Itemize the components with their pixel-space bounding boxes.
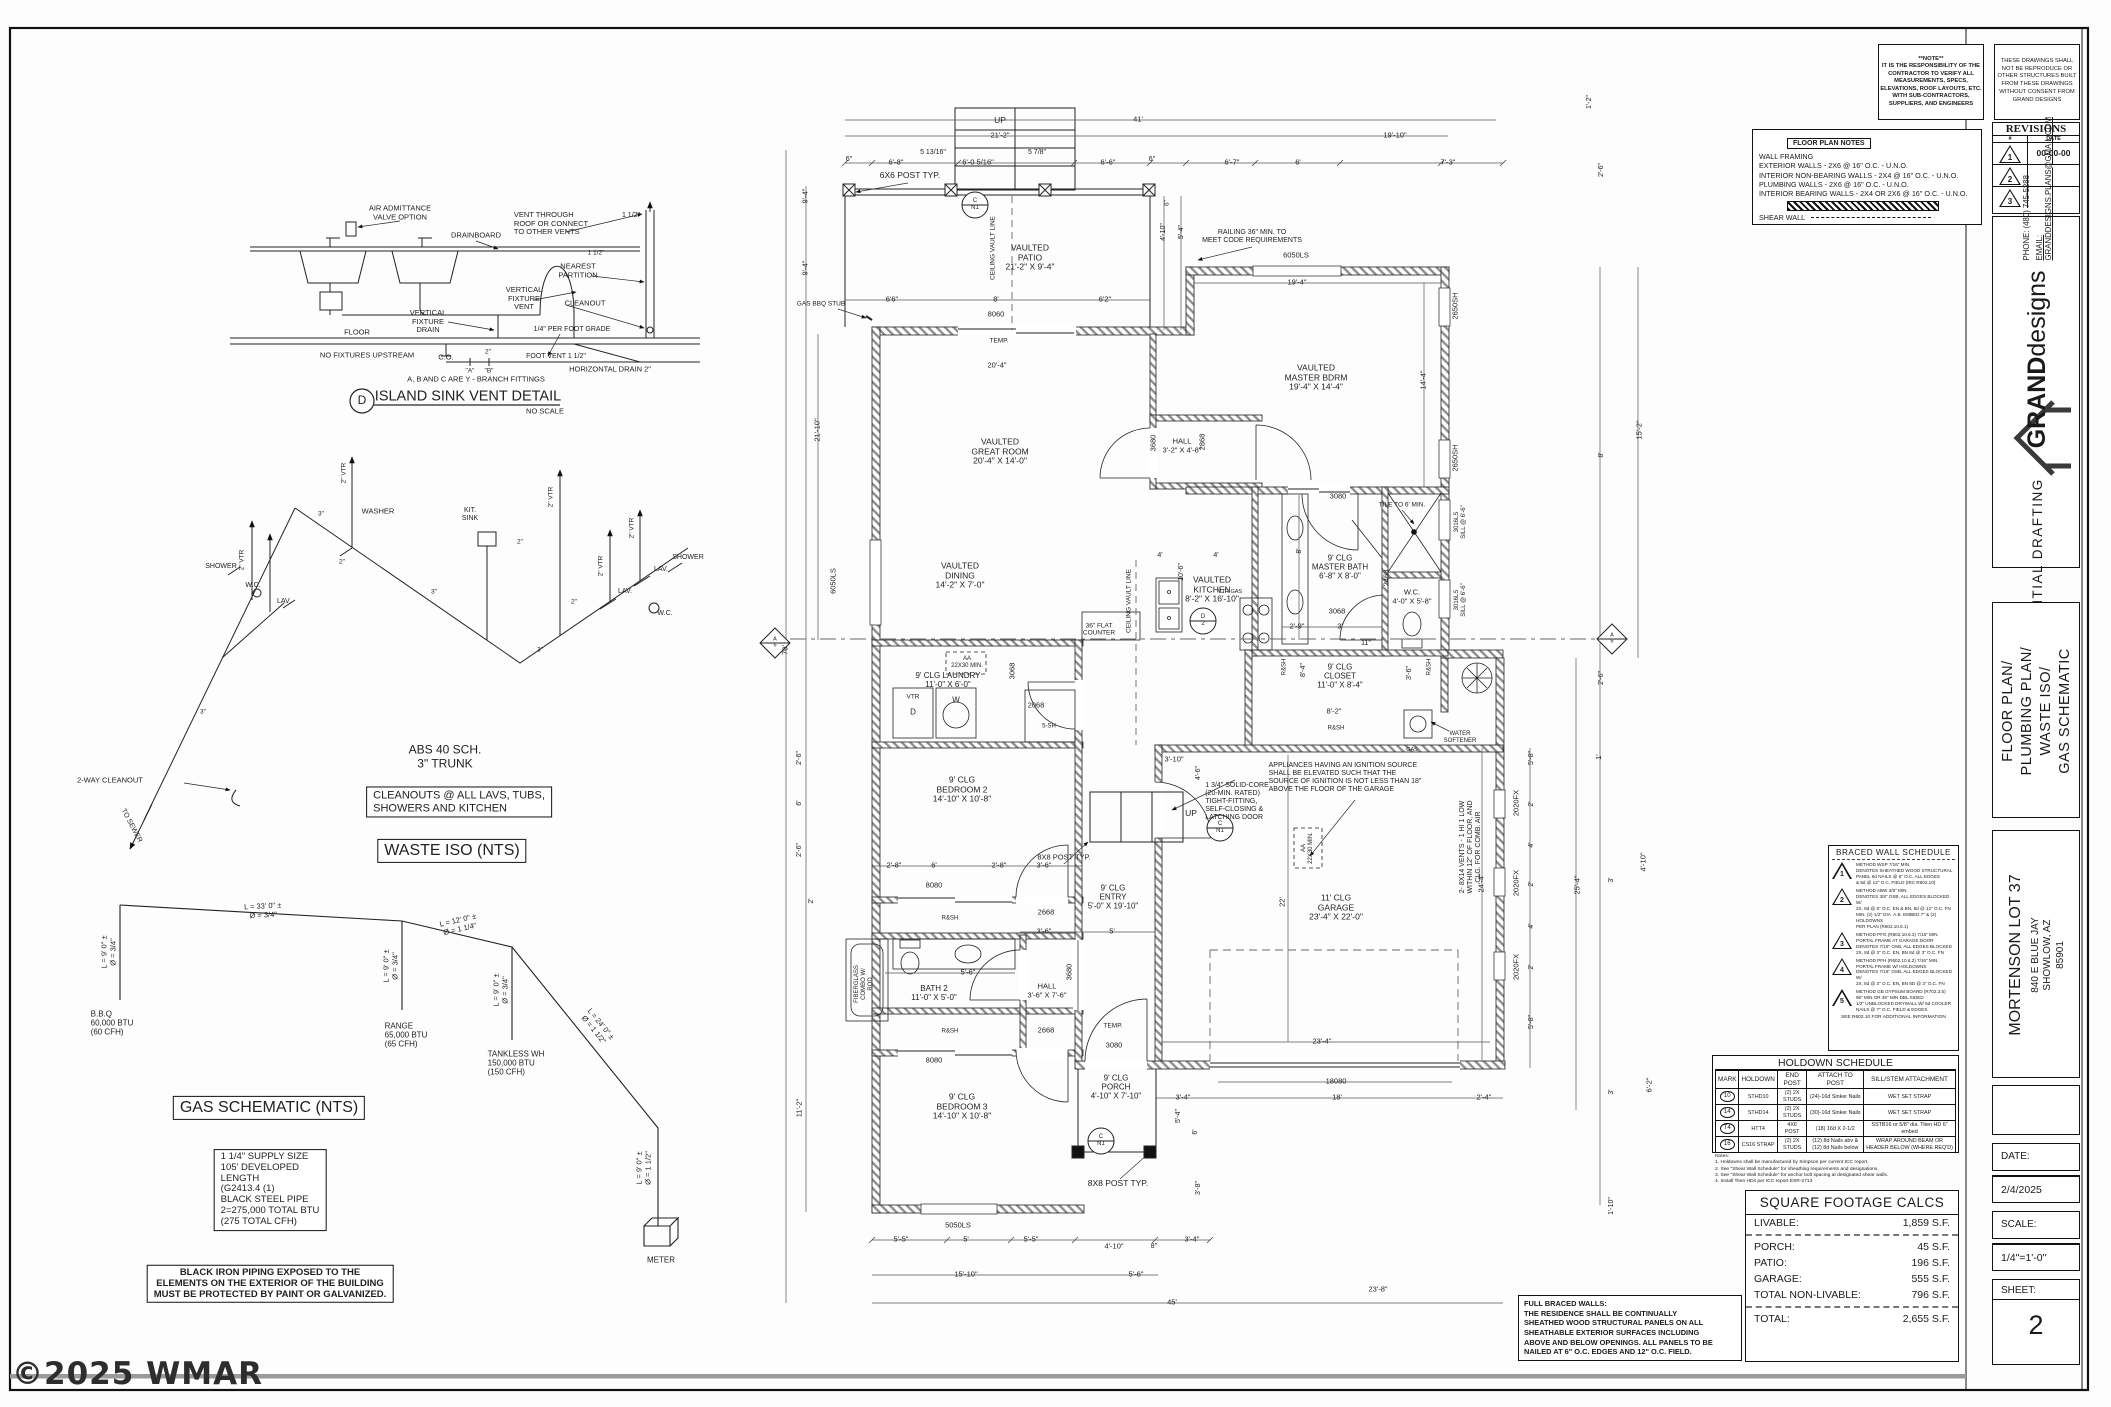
room-label-closet: 9' CLG CLOSET 11'-0" X 8'-4" [1317, 662, 1363, 689]
annotation-label: 4' [1528, 923, 1536, 928]
sqft-row-patio: PATIO:196 S.F. [1746, 1255, 1958, 1271]
annotation-label: 6' [1192, 1129, 1200, 1134]
titleblock-empty-box [1992, 1085, 2080, 1135]
room-label-bath-2: BATH 2 11'-0" X 5'-0" [911, 984, 957, 1002]
annotation-label: 2468 [1383, 570, 1392, 587]
annotation-label: 19'-10" [1383, 132, 1406, 141]
braced-triangle-icon: 2 [1832, 888, 1852, 905]
annotation-label: 4'-10" [1104, 1243, 1123, 1252]
annotation-label: 6'-6" [1101, 159, 1116, 168]
annotation-label: L = 33' 0" ± Ø = 3/4" [244, 901, 282, 920]
braced-triangle-icon: 5 [1832, 989, 1852, 1006]
sqft-row-livable: LIVABLE:1,859 S.F. [1746, 1215, 1958, 1231]
ignition-note: APPLIANCES HAVING AN IGNITION SOURCE SHA… [1269, 762, 1422, 794]
scale-value: 1/4"=1'-0" [2001, 1252, 2046, 1264]
annotation-label: A 6 [773, 637, 777, 650]
annotation-label: 9'-4" [802, 261, 811, 276]
annotation-label: 4'-10" [1640, 852, 1649, 871]
room-label-laundry: 9' CLG LAUNDRY 11'-0" X 6'-0" [916, 671, 981, 689]
annotation-label: VERTICAL FIXTURE DRAIN [410, 309, 447, 335]
room-label-porch: 9' CLG PORCH 4'-10" X 7'-10" [1091, 1073, 1142, 1100]
floor-plan-notes-title: FLOOR PLAN NOTES [1787, 138, 1871, 149]
room-label-bedroom-3: 9' CLG BEDROOM 3 14'-10" X 10'-8" [933, 1092, 991, 1121]
braced-wall-row: 3METHOD PFG (R602.10.6.3) 7/16" MIN PORT… [1832, 932, 1955, 956]
annotation-label: 36" FLAT COUNTER [1083, 623, 1115, 638]
annotation-label: 4' [1213, 552, 1218, 560]
annotation-label: 5'-8" [1528, 1015, 1536, 1029]
annotation-label: 2' [1528, 881, 1536, 886]
annotation-label: 2'-6" [796, 751, 804, 765]
room-label-dining: VAULTED DINING 14'-2" X 7'-0" [936, 561, 985, 590]
annotation-label: 3" [318, 510, 324, 517]
annotation-label: 3016LS SILL @ 6'-6" [1454, 583, 1468, 617]
annotation-label: 4' [1157, 552, 1162, 560]
holdown-table: MARKHOLDOWNEND POSTATTACH TO POSTSILL/ST… [1715, 1070, 1956, 1153]
annotation-label: 3'-4" [1176, 1094, 1191, 1103]
cleanouts-note: CLEANOUTS @ ALL LAVS, TUBS, SHOWERS AND … [366, 786, 552, 817]
revision-triangle-icon: 2 [1999, 167, 2021, 185]
annotation-label: 2" VTR [628, 518, 635, 539]
annotation-label: 4' [1528, 842, 1536, 847]
annotation-label: R&SH [1427, 659, 1434, 676]
annotation-label: 18' [1332, 1094, 1342, 1103]
island-sink-vent-detail-title: ISLAND SINK VENT DETAIL [375, 389, 561, 406]
annotation-label: 2020FX [1513, 954, 1522, 980]
braced-wall-row: 1METHOD WSP 7/16" MIN. DENOTES SHEATHED … [1832, 862, 1955, 886]
annotation-label: 5 7/8" [1028, 149, 1046, 157]
gas-meter-label: METER [647, 1255, 675, 1264]
annotation-label: 11'-2" [796, 1099, 805, 1118]
braced-triangle-icon: 3 [1832, 932, 1852, 949]
annotation-label: 6' [1295, 159, 1301, 168]
annotation-label: AA 22X30 MIN. [951, 656, 983, 670]
room-label-great-room: VAULTED GREAT ROOM 20'-4" X 14'-0" [971, 437, 1028, 466]
annotation-label: L = 24' 0" ± Ø = 1 1/2" [579, 1007, 616, 1047]
annotation-label: CEILING VAULT LINE [989, 216, 996, 280]
annotation-label: NO SCALE [526, 408, 564, 417]
annotation-label: UP [1185, 809, 1197, 819]
annotation-label: C N1 [1216, 821, 1224, 835]
annotation-label: 2650SH [1452, 292, 1461, 319]
floor-plan-notes-box: FLOOR PLAN NOTES WALL FRAMING EXTERIOR W… [1752, 129, 1982, 225]
annotation-label: 3' [1608, 877, 1616, 882]
annotation-label: D 2 [1201, 614, 1205, 628]
annotation-label: VTR [907, 693, 920, 700]
project-box: MORTENSON LOT 37 840 E BLUE JAY SHOWLOW,… [1992, 830, 2080, 1078]
braced-wall-row: 5METHOD GB GYPSUM BOARD (R702.3.5) 96" M… [1832, 989, 1955, 1013]
sheet-number: 2 [1993, 1300, 2079, 1341]
annotation-label: 3" [200, 708, 206, 715]
annotation-label: SHOWER [672, 554, 704, 562]
annotation-label: 3680 [1150, 435, 1159, 452]
annotation-label: 3' [1608, 1089, 1616, 1094]
annotation-label: 2' [1528, 801, 1536, 806]
annotation-label: 2" [485, 348, 491, 355]
annotation-label: A 6 [1610, 633, 1614, 646]
annotation-label: FOOT VENT 1 1/2" [526, 353, 586, 361]
annotation-label: 3' [1337, 623, 1343, 632]
post-note-6x6: 6X6 POST TYP. [880, 171, 940, 181]
waste-iso-title: WASTE ISO (NTS) [377, 839, 526, 863]
annotation-label: CLEANOUT [565, 300, 606, 309]
annotation-label: 2'-6" [796, 843, 804, 857]
annotation-label: 2" [339, 558, 345, 565]
annotation-label: 5'-4" [1178, 225, 1186, 239]
annotation-label: LAV. [654, 566, 668, 574]
annotation-label: 6'-2" [1646, 1078, 1655, 1093]
annotation-label: 1 1/2" [622, 212, 640, 220]
annotation-label: FIBERGLASS COMBO W/ ROD [854, 965, 874, 1003]
gas-range: RANGE 65,000 BTU (65 CFH) [385, 1021, 428, 1048]
annotation-label: 4'-6" [1195, 766, 1203, 780]
annotation-label: 2' [808, 898, 816, 903]
annotation-label: 6050LS [1283, 252, 1309, 261]
sheet-title-box: FLOOR PLAN/ PLUMBING PLAN/ WASTE ISO/ GA… [1992, 602, 2080, 818]
annotation-label: 24'-4" [1478, 873, 1487, 892]
annotation-label: 6' [931, 862, 937, 871]
annotation-label: 41' [1133, 116, 1143, 125]
annotation-label: 5'-4" [1175, 1109, 1183, 1123]
annotation-label: L = 9' 0" ± Ø = 3/4" [382, 949, 399, 982]
gas-tankless-wh: TANKLESS WH 150,000 BTU (150 CFH) [488, 1049, 545, 1076]
annotation-label: 1/4" PER FOOT GRADE [534, 326, 611, 334]
project-address: 840 E BLUE JAY SHOWLOW, AZ 85901 [2030, 917, 2068, 992]
annotation-label: 2020FX [1513, 790, 1522, 816]
annotation-label: 3068 [1329, 608, 1346, 617]
annotation-label: 21'-2" [990, 132, 1009, 141]
contractor-note-text: **NOTE** IT IS THE RESPONSIBILITY OF THE… [1880, 56, 1981, 107]
room-label-hall-master: HALL 3'-2" X 4'-8" [1162, 437, 1201, 454]
date-label-box: DATE: [1992, 1143, 2080, 1171]
annotation-label: CEILING VAULT LINE [1125, 569, 1132, 633]
annotation-label: GAS [1406, 747, 1418, 753]
annotation-label: 8" [1151, 1243, 1157, 1251]
annotation-label: 7'-3" [1441, 159, 1456, 168]
annotation-label: SHOWER [205, 563, 237, 571]
annotation-label: 2'-8" [992, 862, 1007, 871]
annotation-label: A, B AND C ARE Y - BRANCH FITTINGS [407, 376, 545, 385]
annotation-label: 6'2" [1099, 296, 1111, 305]
annotation-label: TILE TO 6' MIN. [1379, 501, 1426, 508]
logo-designs: designs [2023, 270, 2051, 356]
annotation-label: 3080 [1106, 1042, 1123, 1051]
annotation-label: 15'-2" [1636, 420, 1645, 439]
annotation-label: 2'-8" [887, 862, 902, 871]
braced-triangle-icon: 4 [1832, 958, 1852, 975]
annotation-label: 19'-4" [1287, 279, 1306, 288]
annotation-label: 5'-5" [894, 1236, 909, 1245]
drawing-sheet: AIR ADMITTANCE VALVE OPTIONDRAINBOARDVEN… [0, 0, 2111, 1407]
post-note-8x8: 8X8 POST TYP. [1088, 1179, 1148, 1189]
annotation-label: 14'-4" [1420, 370, 1429, 389]
annotation-label: TO SEWER [119, 808, 144, 845]
braced-wall-row: 2METHOD ABW 3/8" MIN. DENOTES 3/8" OSB, … [1832, 888, 1955, 930]
annotation-label: 2668 [1038, 1027, 1055, 1036]
annotation-label: C N1 [1097, 1134, 1105, 1148]
brand-box: RESIDENTIAL DRAFTING GRANDdesigns PHONE:… [1992, 216, 2080, 568]
annotation-label: 8' [993, 296, 999, 305]
scale-label-box: SCALE: [1992, 1211, 2080, 1239]
annotation-label: 5'-6" [961, 969, 976, 978]
holdown-title: HOLDOWN SCHEDULE [1715, 1057, 1956, 1070]
annotation-label: R&SH [942, 916, 959, 923]
annotation-label: 6050LS [830, 568, 839, 594]
scale-label: SCALE: [2001, 1219, 2037, 1230]
annotation-label: 2668 [1038, 909, 1055, 918]
black-iron-note: BLACK IRON PIPING EXPOSED TO THE ELEMENT… [147, 1265, 394, 1303]
annotation-label: 8'-2" [1327, 708, 1342, 717]
sheet-number-box: SHEET: 2 [1992, 1279, 2080, 1365]
annotation-label: NEAREST PARTITION [558, 262, 597, 279]
annotation-label: L = 9' 0" ± Ø = 3/4" [492, 973, 509, 1006]
annotation-label: L = 12' 0" ± Ø = 1 1/4" [439, 912, 479, 937]
floor-plan-notes-lines: WALL FRAMING EXTERIOR WALLS - 2X6 @ 16" … [1759, 152, 1975, 199]
annotation-label: 70' [782, 645, 791, 655]
sqft-row-nonlivable: TOTAL NON-LIVABLE:796 S.F. [1746, 1287, 1958, 1303]
holdown-row: 16CS16 STRAP(2) 2X STUDS(12) 8d Nails ab… [1716, 1137, 1956, 1153]
logo-grand: GRAND [2023, 357, 2051, 449]
annotation-label: 8060 [988, 311, 1005, 320]
gas-supply-note: 1 1/4" SUPPLY SIZE 105' DEVELOPED LENGTH… [214, 1149, 327, 1231]
annotation-label: 2" VTR [238, 550, 245, 571]
annotation-label: 5050LS [945, 1222, 971, 1231]
project-name: MORTENSON LOT 37 [2007, 874, 2025, 1035]
annotation-label: 3'-8" [1195, 1181, 1203, 1195]
annotation-label: 2-WAY CLEANOUT [77, 777, 143, 786]
annotation-label: 8'-4" [1300, 663, 1308, 677]
annotation-label: 2650SH [1452, 444, 1461, 471]
revision-triangle-icon: 3 [1999, 189, 2021, 207]
gas-schematic-title: GAS SCHEMATIC (NTS) [173, 1096, 365, 1120]
annotation-label: 3" [431, 588, 437, 595]
annotation-label: 3'-6" [1406, 666, 1414, 680]
annotation-label: 1' [1596, 754, 1604, 759]
annotation-label: R&SH [1282, 659, 1289, 676]
annotation-label: 5' [963, 1236, 969, 1245]
copyright-note-text: THESE DRAWINGS SHALL NOT BE REPRODUCE OR… [1997, 58, 2076, 103]
annotation-label: W [952, 695, 960, 704]
annotation-label: R&SH [942, 1029, 959, 1036]
annotation-label: L = 9' 0" ± Ø = 1 1/2" [635, 1151, 652, 1185]
annotation-label: VERTICAL FIXTURE VENT [506, 286, 543, 312]
annotation-label: WASHER [362, 508, 395, 517]
sqft-row-total: TOTAL:2,655 S.F. [1746, 1311, 1958, 1327]
station-watermark: ©2025 WMAR [12, 1356, 263, 1392]
room-label-master-bath: 9' CLG MASTER BATH 6'-8" X 8'-0" [1312, 553, 1368, 580]
annotation-label: 3" [537, 646, 543, 653]
annotation-label: W.C. [657, 610, 672, 618]
room-label-master-bedroom: VAULTED MASTER BDRM 19'-4" X 14'-4" [1285, 363, 1348, 392]
annotation-label: 6' [796, 800, 804, 805]
annotation-label: 5'-6" [1129, 1271, 1144, 1280]
annotation-label: 18080 [1326, 1078, 1347, 1087]
annotation-label: 6'-8" [889, 159, 904, 168]
annotation-label: 2" VTR [547, 487, 554, 508]
sheet-label: SHEET: [1993, 1280, 2079, 1300]
annotation-label: 8' [1296, 548, 1304, 553]
full-braced-walls-note: FULL BRACED WALLS: THE RESIDENCE SHALL B… [1518, 1295, 1742, 1361]
annotation-label: 4'-10" [1160, 223, 1168, 241]
annotation-label: 11" [1361, 640, 1371, 648]
sqft-row-porch: PORCH:45 S.F. [1746, 1239, 1958, 1255]
braced-wall-title: BRACED WALL SCHEDULE [1832, 848, 1955, 857]
annotation-label: 23'-8" [1368, 1286, 1387, 1295]
annotation-label: 1'-2" [1586, 95, 1594, 109]
annotation-label: AA 22X30 MIN. [1301, 832, 1315, 864]
holdown-row: 14STHD14(2) 2X STUDS(30)-16d Sinker Nail… [1716, 1105, 1956, 1121]
waste-iso-trunk-note: ABS 40 SCH. 3" TRUNK [409, 743, 482, 770]
annotation-label: "A" [466, 367, 475, 374]
annotation-label: L = 9' 0" ± Ø = 3/4" [100, 935, 117, 968]
annotation-label: 2'-6" [1598, 163, 1606, 177]
annotation-label: C N1 [971, 198, 979, 212]
annotation-label: 8' [1598, 452, 1606, 457]
bearing-wall-symbol [1787, 201, 1939, 211]
room-label-wc: W.C. 4'-0" X 5'-8" [1392, 588, 1431, 605]
annotation-label: 2868 [1199, 434, 1208, 451]
annotation-label: WATER SOFTENER [1444, 731, 1477, 745]
holdown-row: T4HTT44X6 POST(18) 16d X 2-1/2SSTB16 or … [1716, 1121, 1956, 1137]
annotation-label: 6" [1163, 200, 1170, 206]
date-label: DATE: [2001, 1151, 2030, 1162]
annotation-label: FLOOR [344, 329, 370, 338]
sqft-row-garage: GARAGE:555 S.F. [1746, 1271, 1958, 1287]
gas-bbq: B.B.Q 60,000 BTU (60 CFH) [91, 1009, 134, 1036]
annotation-label: 8080 [926, 1057, 943, 1066]
annotation-label: AIR ADMITTANCE VALVE OPTION [369, 204, 431, 221]
annotation-label: 21'-10" [814, 418, 823, 441]
annotation-label: 3'-6" [1037, 862, 1052, 871]
annotation-label: 2' [1528, 964, 1536, 969]
annotation-label: 25'-4" [1574, 875, 1583, 894]
room-label-entry: 9' CLG ENTRY 5'-0" X 19'-10" [1088, 883, 1139, 910]
annotation-label: 20'-4" [987, 362, 1006, 371]
annotation-label: 5'-8" [1528, 751, 1536, 765]
holdown-schedule: HOLDOWN SCHEDULE MARKHOLDOWNEND POSTATTA… [1712, 1055, 1959, 1153]
annotation-label: 1'-10" [1608, 1197, 1616, 1215]
annotation-label: 3'-4" [1185, 1236, 1200, 1245]
annotation-label: R&SH [1328, 726, 1345, 733]
annotation-label: 2" [571, 598, 577, 605]
annotation-label: 6" [846, 156, 852, 164]
braced-wall-row: 4METHOD PFH (R602.10.6.2) 7/16" MIN PORT… [1832, 958, 1955, 988]
revision-triangle-icon: 1 [1999, 145, 2021, 163]
garage-door-note: 1 3/4" SOLID-CORE (20-MIN. RATED) TIGHT-… [1205, 782, 1269, 822]
annotation-label: 3'-10" [1164, 756, 1183, 765]
contractor-note-box: **NOTE** IT IS THE RESPONSIBILITY OF THE… [1878, 44, 1984, 120]
square-footage-box: SQUARE FOOTAGE CALCS LIVABLE:1,859 S.F. … [1745, 1190, 1959, 1362]
shear-wall-line-symbol [1811, 217, 1931, 218]
annotation-label: 6'-0 5/16" [962, 159, 994, 168]
annotation-label: 8080 [926, 882, 943, 891]
annotation-label: 1 1/2" [588, 249, 605, 256]
braced-wall-schedule: BRACED WALL SCHEDULE 1METHOD WSP 7/16" M… [1828, 845, 1959, 1051]
sheet-title-text: FLOOR PLAN/ PLUMBING PLAN/ WASTE ISO/ GA… [1999, 647, 2074, 776]
braced-wall-footer: SEE R602.10 FOR ADDITIONAL INFORMATION [1832, 1015, 1955, 1020]
room-label-patio: VAULTED PATIO 21'-2" X 9'-4" [1006, 243, 1055, 272]
annotation-label: NO FIXTURES UPSTREAM [320, 352, 414, 361]
annotation-label: 2" [517, 538, 523, 545]
annotation-label: 3680 [1066, 964, 1075, 981]
room-label-hall-bedrooms: HALL 3'-6" X 7'-6" [1027, 982, 1066, 999]
annotation-label: 5' [1109, 928, 1115, 937]
square-footage-title: SQUARE FOOTAGE CALCS [1746, 1191, 1958, 1215]
annotation-label: HORIZONTAL DRAIN 2" [569, 366, 651, 375]
annotation-label: DRAINBOARD [451, 232, 501, 241]
scale-value-box: 1/4"=1'-0" [1992, 1243, 2080, 1271]
annotation-label: W.C. [245, 582, 260, 590]
annotation-label: 2020FX [1513, 870, 1522, 896]
room-label-bedroom-2: 9' CLG BEDROOM 2 14'-10" X 10'-8" [933, 775, 991, 804]
holdown-row: 10STHD10(2) 2X STUDS(24)-16d Sinker Nail… [1716, 1089, 1956, 1105]
date-value-box: 2/4/2025 [1992, 1175, 2080, 1203]
annotation-label: 3016LS SILL @ 6'-6" [1454, 505, 1468, 539]
annotation-label: 6'-7" [1225, 159, 1240, 168]
annotation-label: 5 13/16" [920, 149, 946, 157]
annotation-label: "B" [485, 367, 494, 374]
annotation-label: 2" VTR [597, 556, 604, 577]
annotation-label: TEMP. [1103, 1022, 1122, 1029]
annotation-label: 3068 [1009, 663, 1018, 680]
date-value: 2/4/2025 [2001, 1184, 2042, 1196]
annotation-label: VTR GAS [1218, 589, 1242, 595]
annotation-label: 2'-6" [1598, 671, 1606, 685]
brand-email: EMAIL: GRANDDESIGNS.PLANS@GMAIL.COM [2035, 117, 2053, 261]
annotation-label: 6" [1149, 156, 1155, 164]
annotation-label: VENT THROUGH ROOF OR CONNECT TO OTHER VE… [514, 211, 588, 237]
annotation-label: 45' [1167, 1299, 1177, 1308]
annotation-label: LAV. [277, 598, 291, 606]
railing-note: RAILING 36" MIN. TO MEET CODE REQUIREMEN… [1202, 229, 1302, 245]
annotation-label: D [910, 707, 916, 716]
annotation-label: 6'6" [886, 296, 898, 305]
annotation-label: 9'-4" [802, 189, 811, 204]
gas-bbq-stub-note: GAS BBQ STUB [797, 300, 845, 307]
copyright-note-box: THESE DRAWINGS SHALL NOT BE REPRODUCE OR… [1994, 44, 2080, 120]
annotation-label: 2'-4" [1477, 1094, 1492, 1103]
annotation-label: KIT. SINK [462, 507, 478, 523]
shear-wall-label: SHEAR WALL [1759, 213, 1805, 222]
detail-ref-d: D [358, 394, 367, 408]
annotation-label: 5-SH [1042, 724, 1056, 731]
annotation-label: 2'-9" [1290, 623, 1305, 632]
annotation-label: 5'-5" [1024, 1236, 1039, 1245]
annotation-label: 15'-10" [954, 1271, 977, 1280]
annotation-label: 23'-4" [1312, 1038, 1331, 1047]
annotation-label: LAV. [618, 588, 632, 596]
holdown-notes: Notes: 1. Holdowns shall be manufactured… [1715, 1154, 1956, 1185]
annotation-label: C.O. [438, 354, 453, 363]
annotation-label: 3'-6" [1037, 928, 1052, 937]
annotation-label: TEMP. [989, 337, 1008, 344]
brand-phone: PHONE: (480) 745-5288 [2022, 175, 2031, 260]
annotation-label: 3080 [1330, 493, 1347, 502]
room-label-garage: 11' CLG GARAGE 23'-4" X 22'-0" [1309, 893, 1363, 922]
annotation-label: 2068 [1028, 702, 1045, 711]
braced-triangle-icon: 1 [1832, 862, 1852, 879]
annotation-label: 2" VTR [340, 463, 347, 484]
annotation-label: 10'-6" [1178, 563, 1186, 581]
annotation-label: UP [994, 116, 1006, 126]
annotation-label: 22' [1279, 897, 1288, 907]
